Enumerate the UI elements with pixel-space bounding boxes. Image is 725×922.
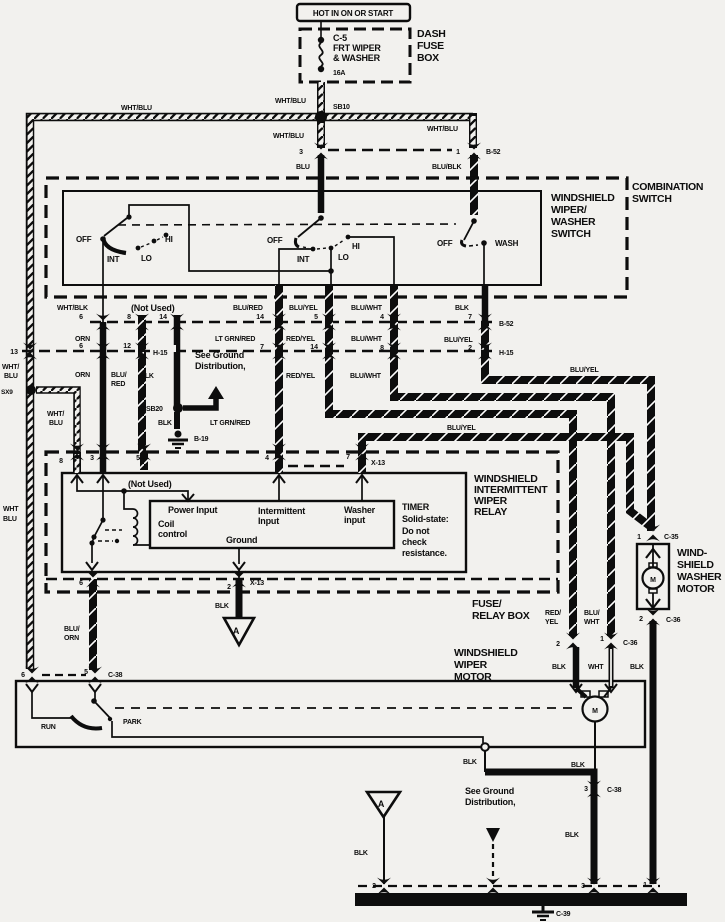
svg-text:8: 8	[127, 314, 131, 321]
svg-text:8: 8	[59, 458, 63, 465]
svg-text:BLU: BLU	[296, 164, 310, 171]
svg-text:C-38: C-38	[108, 672, 123, 679]
svg-text:A: A	[233, 626, 240, 636]
svg-text:INT: INT	[297, 255, 310, 264]
svg-text:X-13: X-13	[250, 580, 264, 587]
svg-text:BLK: BLK	[140, 373, 154, 380]
svg-text:WHT/: WHT/	[2, 364, 19, 371]
svg-text:Power Input: Power Input	[168, 505, 218, 515]
svg-text:13: 13	[10, 349, 18, 356]
svg-text:B-52: B-52	[499, 321, 514, 328]
svg-text:WHT/BLU: WHT/BLU	[273, 133, 304, 140]
svg-text:7: 7	[346, 454, 350, 461]
svg-text:& WASHER: & WASHER	[333, 53, 381, 63]
svg-text:2: 2	[639, 616, 643, 623]
svg-text:1: 1	[456, 149, 460, 156]
svg-text:BLU: BLU	[4, 373, 18, 380]
svg-text:WASHER: WASHER	[677, 571, 722, 583]
svg-text:BLK: BLK	[463, 759, 477, 766]
svg-text:X-13: X-13	[371, 460, 385, 467]
svg-text:FUSE: FUSE	[417, 40, 444, 52]
svg-text:RED: RED	[111, 381, 125, 388]
svg-text:BLK: BLK	[354, 850, 368, 857]
svg-text:3: 3	[584, 786, 588, 793]
svg-text:WHT/BLU: WHT/BLU	[275, 98, 306, 105]
svg-text:1: 1	[643, 882, 647, 889]
svg-text:C-39: C-39	[556, 911, 571, 918]
svg-text:WINDSHIELD: WINDSHIELD	[551, 192, 615, 204]
svg-text:Washer: Washer	[344, 505, 376, 515]
svg-text:check: check	[402, 537, 428, 547]
svg-text:RUN: RUN	[41, 724, 56, 731]
svg-text:BLU/: BLU/	[64, 626, 80, 633]
svg-text:BLU/YEL: BLU/YEL	[447, 425, 476, 432]
svg-text:H-15: H-15	[499, 350, 514, 357]
svg-text:control: control	[158, 529, 187, 539]
svg-text:M: M	[592, 708, 598, 715]
svg-text:RELAY BOX: RELAY BOX	[472, 610, 530, 622]
svg-text:1: 1	[637, 534, 641, 541]
svg-text:2: 2	[227, 584, 231, 591]
svg-text:WINDSHIELD: WINDSHIELD	[454, 647, 518, 659]
svg-text:C-36: C-36	[666, 617, 681, 624]
svg-text:(Not Used): (Not Used)	[128, 479, 172, 489]
svg-text:ORN: ORN	[75, 336, 90, 343]
svg-text:BLU/YEL: BLU/YEL	[570, 367, 599, 374]
svg-text:HOT IN ON OR START: HOT IN ON OR START	[313, 9, 394, 18]
svg-text:Intermittent: Intermittent	[258, 506, 305, 516]
svg-text:YEL: YEL	[545, 619, 559, 626]
svg-text:WHT: WHT	[584, 619, 600, 626]
svg-text:BLK: BLK	[565, 832, 579, 839]
svg-text:1: 1	[600, 636, 604, 643]
svg-text:BLU/BLK: BLU/BLK	[432, 164, 461, 171]
svg-text:16A: 16A	[333, 70, 345, 77]
svg-text:7: 7	[468, 314, 472, 321]
svg-text:OFF: OFF	[437, 239, 453, 248]
svg-text:14: 14	[256, 314, 264, 321]
svg-text:LO: LO	[338, 253, 349, 262]
svg-text:(Not Used): (Not Used)	[131, 303, 175, 313]
svg-text:12: 12	[123, 343, 131, 350]
svg-text:SB10: SB10	[333, 104, 350, 111]
svg-text:BLK: BLK	[552, 664, 566, 671]
svg-text:BLU/YEL: BLU/YEL	[444, 337, 473, 344]
svg-text:2: 2	[556, 641, 560, 648]
svg-text:5: 5	[314, 314, 318, 321]
svg-text:C-5: C-5	[333, 33, 347, 43]
svg-text:LT GRN/RED: LT GRN/RED	[210, 420, 250, 427]
svg-text:BLU/: BLU/	[584, 610, 600, 617]
svg-text:6: 6	[21, 672, 25, 679]
svg-text:BLK: BLK	[571, 762, 585, 769]
svg-text:OFF: OFF	[76, 235, 92, 244]
svg-text:INT: INT	[107, 255, 120, 264]
svg-text:WHT/BLU: WHT/BLU	[427, 126, 458, 133]
svg-text:M: M	[650, 577, 656, 584]
svg-text:SWITCH: SWITCH	[632, 193, 672, 205]
svg-text:ORN: ORN	[75, 372, 90, 379]
svg-text:LO: LO	[141, 254, 152, 263]
svg-text:resistance.: resistance.	[402, 548, 447, 558]
svg-text:TIMER: TIMER	[402, 502, 430, 512]
svg-text:WHT/BLK: WHT/BLK	[57, 305, 88, 312]
svg-text:H-15: H-15	[153, 350, 168, 357]
svg-text:3: 3	[299, 149, 303, 156]
svg-text:7: 7	[260, 344, 264, 351]
svg-text:BLK: BLK	[455, 305, 469, 312]
svg-text:A: A	[378, 799, 385, 809]
svg-text:LT GRN/RED: LT GRN/RED	[215, 336, 255, 343]
svg-text:14: 14	[159, 314, 167, 321]
svg-text:3: 3	[90, 455, 94, 462]
svg-text:SB20: SB20	[146, 406, 163, 413]
svg-text:SWITCH: SWITCH	[551, 228, 591, 240]
svg-text:C-35: C-35	[664, 534, 679, 541]
svg-text:2: 2	[372, 883, 376, 890]
svg-text:4: 4	[380, 314, 384, 321]
svg-text:B-19: B-19	[194, 436, 209, 443]
svg-text:WIPER/: WIPER/	[551, 204, 587, 216]
svg-text:Solid-state:: Solid-state:	[402, 514, 449, 524]
svg-text:BLU/RED: BLU/RED	[233, 305, 263, 312]
svg-text:WHT/BLU: WHT/BLU	[121, 105, 152, 112]
svg-text:BLK: BLK	[215, 603, 229, 610]
svg-text:input: input	[344, 515, 365, 525]
svg-text:14: 14	[310, 344, 318, 351]
svg-text:Distribution,: Distribution,	[465, 797, 515, 807]
svg-text:BLK: BLK	[158, 420, 172, 427]
svg-text:BLU: BLU	[49, 420, 63, 427]
svg-text:WIPER: WIPER	[454, 659, 488, 671]
svg-text:Ground: Ground	[226, 535, 257, 545]
svg-text:4: 4	[265, 455, 269, 462]
svg-text:RED/YEL: RED/YEL	[286, 373, 316, 380]
svg-text:HI: HI	[352, 242, 360, 251]
svg-text:WIND-: WIND-	[677, 547, 708, 559]
svg-text:WASHER: WASHER	[551, 216, 596, 228]
svg-text:RELAY: RELAY	[474, 506, 507, 518]
svg-text:8: 8	[380, 345, 384, 352]
svg-text:6: 6	[79, 343, 83, 350]
svg-text:Do not: Do not	[402, 526, 429, 536]
svg-text:WHT: WHT	[588, 664, 604, 671]
svg-text:6: 6	[79, 314, 83, 321]
svg-text:B-52: B-52	[486, 149, 501, 156]
svg-text:PARK: PARK	[123, 719, 142, 726]
svg-text:BLU/WHT: BLU/WHT	[351, 336, 383, 343]
svg-text:WASH: WASH	[495, 239, 519, 248]
svg-text:RED/YEL: RED/YEL	[286, 336, 316, 343]
svg-text:See Ground: See Ground	[465, 786, 514, 796]
svg-text:ORN: ORN	[64, 635, 79, 642]
svg-text:FUSE/: FUSE/	[472, 598, 502, 610]
svg-text:Coil: Coil	[158, 519, 174, 529]
svg-text:BLU/: BLU/	[111, 372, 127, 379]
svg-text:BLU/YEL: BLU/YEL	[289, 305, 318, 312]
svg-text:BOX: BOX	[417, 52, 439, 64]
svg-text:See Ground: See Ground	[195, 350, 244, 360]
svg-text:BLU/WHT: BLU/WHT	[350, 373, 382, 380]
svg-text:OFF: OFF	[267, 236, 283, 245]
svg-text:2: 2	[468, 345, 472, 352]
svg-text:FRT WIPER: FRT WIPER	[333, 43, 381, 53]
svg-text:C-36: C-36	[623, 640, 638, 647]
svg-text:3: 3	[581, 883, 585, 890]
svg-text:SX9: SX9	[1, 389, 13, 396]
svg-text:Input: Input	[258, 516, 279, 526]
svg-text:MOTOR: MOTOR	[677, 583, 715, 595]
svg-text:COMBINATION: COMBINATION	[632, 181, 703, 193]
svg-text:BLU: BLU	[3, 516, 17, 523]
svg-text:DASH: DASH	[417, 28, 446, 40]
svg-text:C-38: C-38	[607, 787, 622, 794]
svg-text:WHT: WHT	[3, 506, 19, 513]
svg-text:WHT/: WHT/	[47, 411, 64, 418]
svg-text:BLU/WHT: BLU/WHT	[351, 305, 383, 312]
svg-text:RED/: RED/	[545, 610, 561, 617]
svg-text:6: 6	[79, 580, 83, 587]
svg-text:Distribution,: Distribution,	[195, 361, 245, 371]
svg-text:SHIELD: SHIELD	[677, 559, 714, 571]
svg-text:BLK: BLK	[630, 664, 644, 671]
